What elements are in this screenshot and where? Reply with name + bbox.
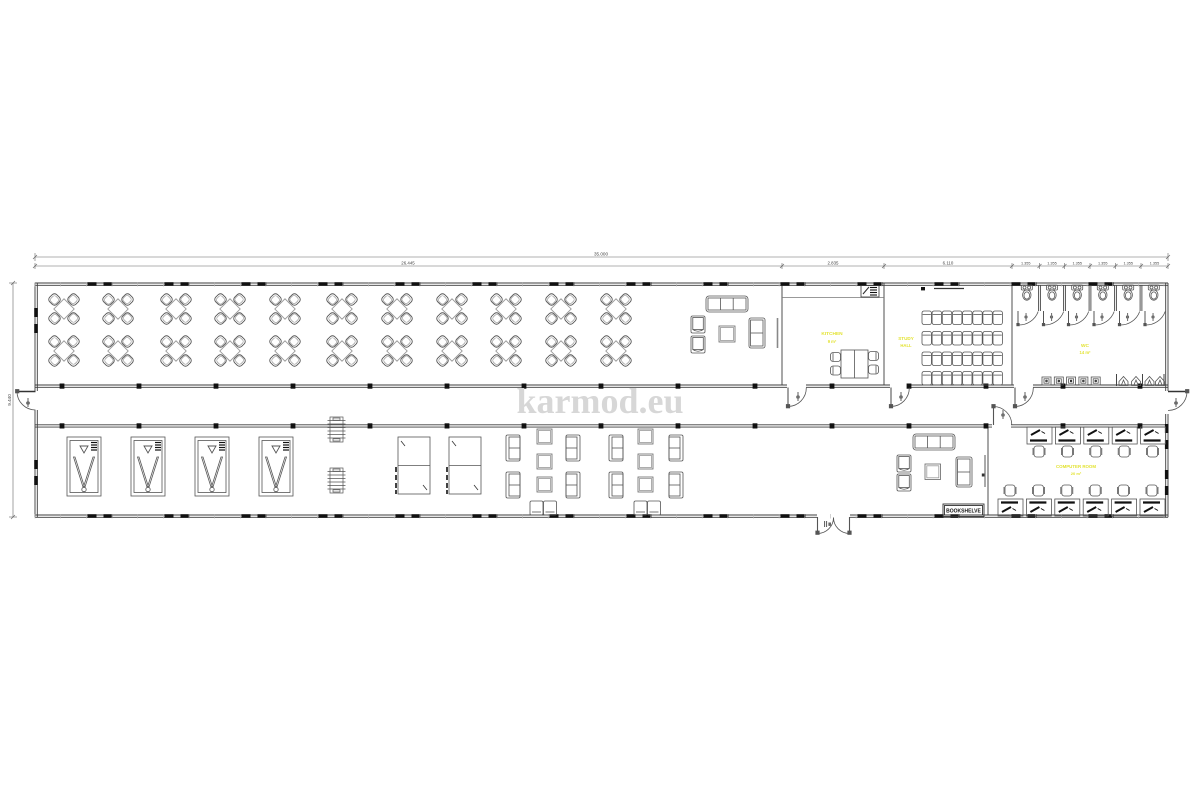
svg-text:1.355: 1.355 <box>1098 262 1108 266</box>
svg-text:1.355: 1.355 <box>1072 262 1082 266</box>
svg-text:1.355: 1.355 <box>1021 262 1031 266</box>
svg-text:HALL: HALL <box>900 343 912 348</box>
svg-text:35.000: 35.000 <box>594 252 608 257</box>
svg-text:BOOKSHELVE: BOOKSHELVE <box>946 509 981 515</box>
svg-text:1.355: 1.355 <box>1150 262 1160 266</box>
svg-text:9 m²: 9 m² <box>828 339 837 344</box>
svg-text:1.355: 1.355 <box>1047 262 1057 266</box>
svg-text:26.445: 26.445 <box>401 261 415 266</box>
svg-text:STUDY: STUDY <box>898 336 914 341</box>
svg-text:20 m²: 20 m² <box>1071 471 1082 476</box>
svg-text:KITCHEN: KITCHEN <box>821 331 843 337</box>
svg-text:9.440: 9.440 <box>7 394 12 406</box>
svg-text:karmod.eu: karmod.eu <box>516 381 683 421</box>
svg-text:WC: WC <box>1081 343 1090 349</box>
svg-text:COMPUTER ROOM: COMPUTER ROOM <box>1056 464 1096 469</box>
svg-text:6.110: 6.110 <box>943 261 954 266</box>
svg-text:2.835: 2.835 <box>828 261 840 266</box>
svg-text:1.355: 1.355 <box>1123 262 1133 266</box>
svg-text:14 m²: 14 m² <box>1080 350 1092 355</box>
